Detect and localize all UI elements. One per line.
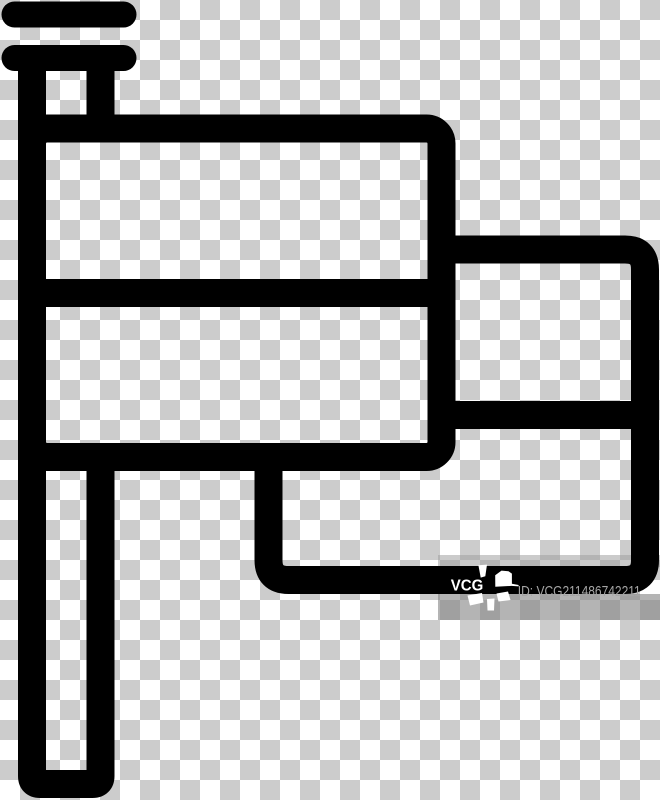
svg-text:ID: VCG211486742211: ID: VCG211486742211	[518, 583, 641, 599]
svg-text:VCG: VCG	[451, 577, 484, 594]
